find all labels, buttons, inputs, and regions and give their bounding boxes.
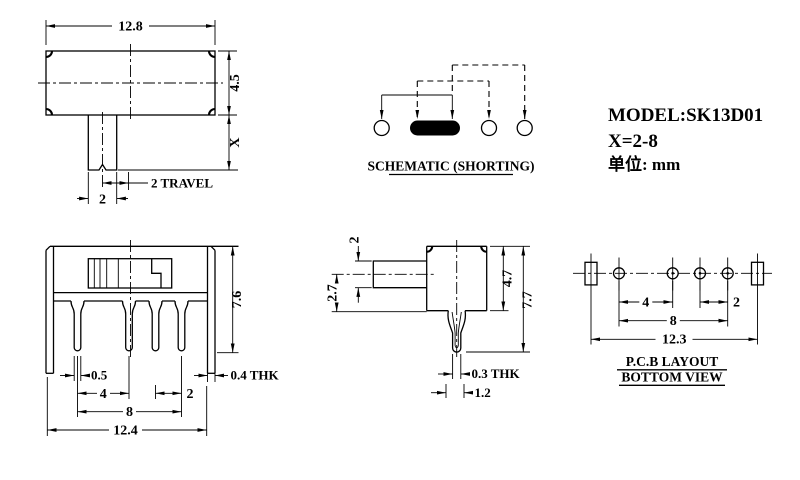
corner-mark-icon	[427, 246, 433, 252]
dim-top-knob-width: 2	[99, 193, 106, 208]
top-view: 12.8 4.5 X 2 TRAVEL 2	[38, 19, 243, 208]
schematic-terminal	[517, 121, 532, 136]
front-pin	[71, 301, 84, 351]
pcb-title: P.C.B LAYOUT	[626, 354, 718, 369]
dim-pcb-pitch2: 2	[733, 295, 740, 310]
dim-top-x: X	[228, 137, 243, 147]
schematic-terminal	[482, 121, 497, 136]
dim-front-width: 12.4	[113, 423, 138, 438]
dim-side-knob-center: 2.7	[326, 284, 341, 302]
corner-mark-icon	[481, 246, 487, 252]
schematic-contact-pill	[410, 121, 460, 136]
dim-top-travel: 2 TRAVEL	[151, 176, 213, 191]
dim-side-height: 7.7	[521, 291, 536, 309]
dim-side-body-height: 4.7	[501, 270, 516, 288]
schematic-title: SCHEMATIC (SHORTING)	[368, 159, 535, 174]
dim-pcb-span: 8	[670, 314, 677, 329]
front-pin	[149, 301, 162, 351]
schematic-view: SCHEMATIC (SHORTING)	[368, 65, 535, 175]
dim-side-knob-thk: 2	[347, 237, 362, 244]
dim-side-pin-tip: 1.2	[475, 385, 491, 400]
knob-hatch	[94, 259, 118, 288]
dim-front-span: 8	[126, 405, 133, 420]
front-pin	[175, 301, 188, 351]
corner-mark-icon	[46, 51, 52, 57]
dim-side-pin-thk: 0.3 THK	[472, 366, 521, 381]
dim-pcb-width: 12.3	[662, 333, 687, 348]
corner-mark-icon	[209, 109, 215, 115]
schematic-terminal	[374, 121, 389, 136]
corner-mark-icon	[209, 51, 215, 57]
dim-top-width: 12.8	[118, 20, 143, 35]
x-range: X=2-8	[608, 131, 658, 152]
dim-pcb-pitch4: 4	[642, 295, 649, 310]
corner-mark-icon	[46, 109, 52, 115]
dim-front-pitch4: 4	[100, 387, 107, 402]
dim-top-height: 4.5	[228, 74, 243, 92]
dim-front-height: 7.6	[230, 291, 245, 309]
unit-note: 单位: mm	[608, 154, 680, 174]
front-view: 7.6 0.5 0.4 THK 4 2 8 12.4	[46, 240, 280, 438]
model-number: MODEL:SK13D01	[608, 105, 763, 126]
pcb-subtitle: BOTTOM VIEW	[621, 370, 723, 385]
technical-drawing: 12.8 4.5 X 2 TRAVEL 2 SCHEMATIC (SHORTIN…	[0, 0, 800, 480]
dim-front-pin-width: 0.5	[91, 368, 108, 383]
pcb-layout-view: 4 2 8 12.3 P.C.B LAYOUT BOTTOM VIEW	[573, 254, 772, 386]
dim-front-bracket-thk: 0.4 THK	[231, 368, 280, 383]
datasheet-page: 12.8 4.5 X 2 TRAVEL 2 SCHEMATIC (SHORTIN…	[0, 0, 800, 480]
front-pin	[123, 301, 136, 351]
dim-front-pitch2: 2	[187, 387, 194, 402]
side-view: 2 2.7 4.7 7.7 0.3 THK 1.2	[326, 237, 536, 401]
info-block: MODEL:SK13D01 X=2-8 单位: mm	[608, 105, 763, 174]
